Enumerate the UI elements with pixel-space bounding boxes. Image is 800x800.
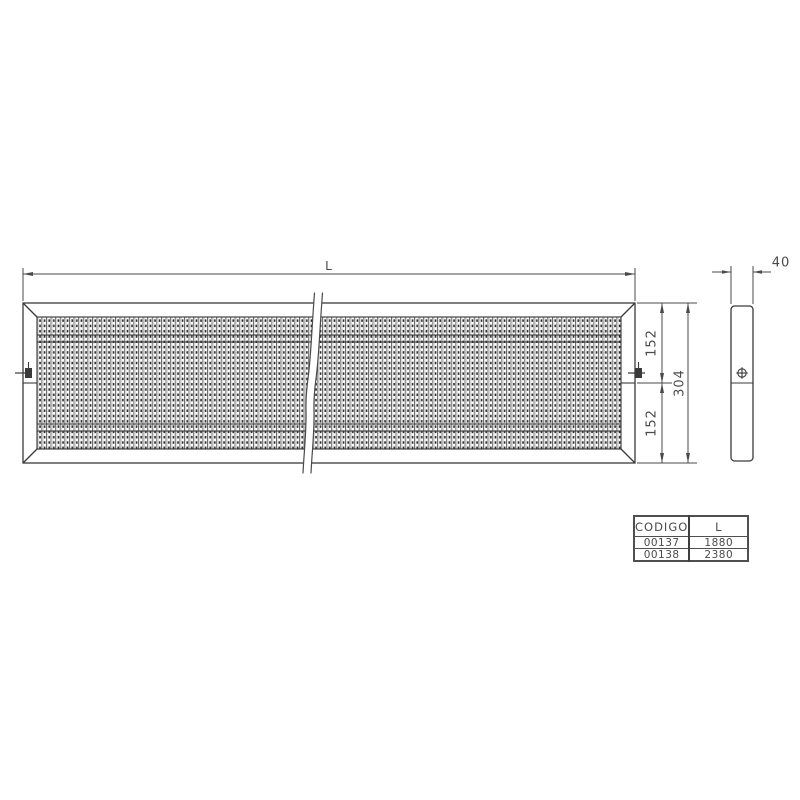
- half-height-bottom-dimension-label: 152: [646, 409, 659, 437]
- spec-table-header-codigo: CODIGO: [634, 516, 689, 537]
- thickness-dimension-label: 40: [772, 257, 791, 270]
- spec-table: CODIGO L 00137 1880 00138 2380: [633, 515, 749, 562]
- mesh-area: [37, 317, 621, 449]
- bolt-icon-right: [628, 362, 645, 378]
- spec-table-header-length: L: [689, 516, 748, 537]
- front-view: [15, 293, 645, 473]
- spec-table-header-row: CODIGO L: [634, 516, 748, 537]
- technical-drawing-sheet: L 40 152 152 304 CODIGO L 00137 1880 001…: [0, 0, 800, 800]
- table-row: 00138 2380: [634, 549, 748, 562]
- drawing-graphics: [0, 0, 800, 800]
- table-row: 00137 1880: [634, 537, 748, 549]
- half-height-top-dimension-label: 152: [646, 329, 659, 357]
- length-dimension-label: L: [325, 260, 333, 272]
- spec-table-code-cell: 00137: [634, 537, 689, 549]
- dimension-heights: [637, 303, 697, 463]
- center-mark-icon: [736, 367, 747, 378]
- total-height-dimension-label: 304: [674, 369, 687, 397]
- spec-table-code-cell: 00138: [634, 549, 689, 562]
- side-view: [731, 306, 753, 461]
- spec-table-length-cell: 2380: [689, 549, 748, 562]
- dimension-thickness: [712, 266, 771, 304]
- spec-table-length-cell: 1880: [689, 537, 748, 549]
